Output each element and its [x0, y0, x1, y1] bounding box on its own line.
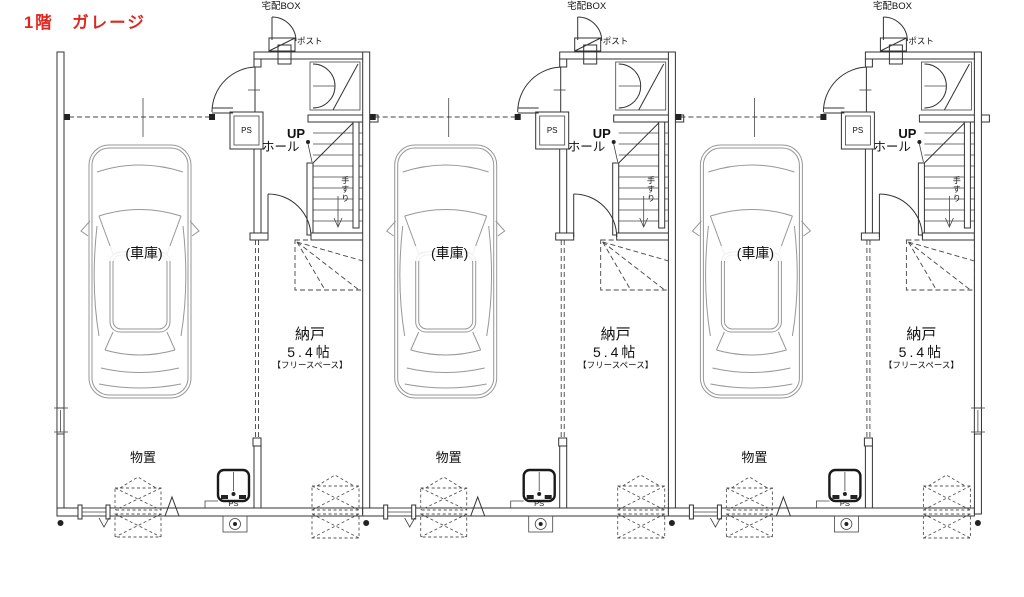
outer-right-wall [971, 52, 985, 526]
page-title: 1階 ガレージ [24, 9, 146, 33]
floor-plan-first-floor-garage: 1階 ガレージ 宅配BOX ポスト PS UP ホール 手すり 納戸 5.4帖 … [0, 0, 1024, 597]
floorplan-unit-1 [57, 17, 378, 538]
floorplan-unit-2 [363, 17, 684, 538]
outer-left-wall-window [54, 408, 68, 434]
floorplan-unit-3 [668, 17, 989, 538]
floorplan-linework [0, 0, 1024, 597]
